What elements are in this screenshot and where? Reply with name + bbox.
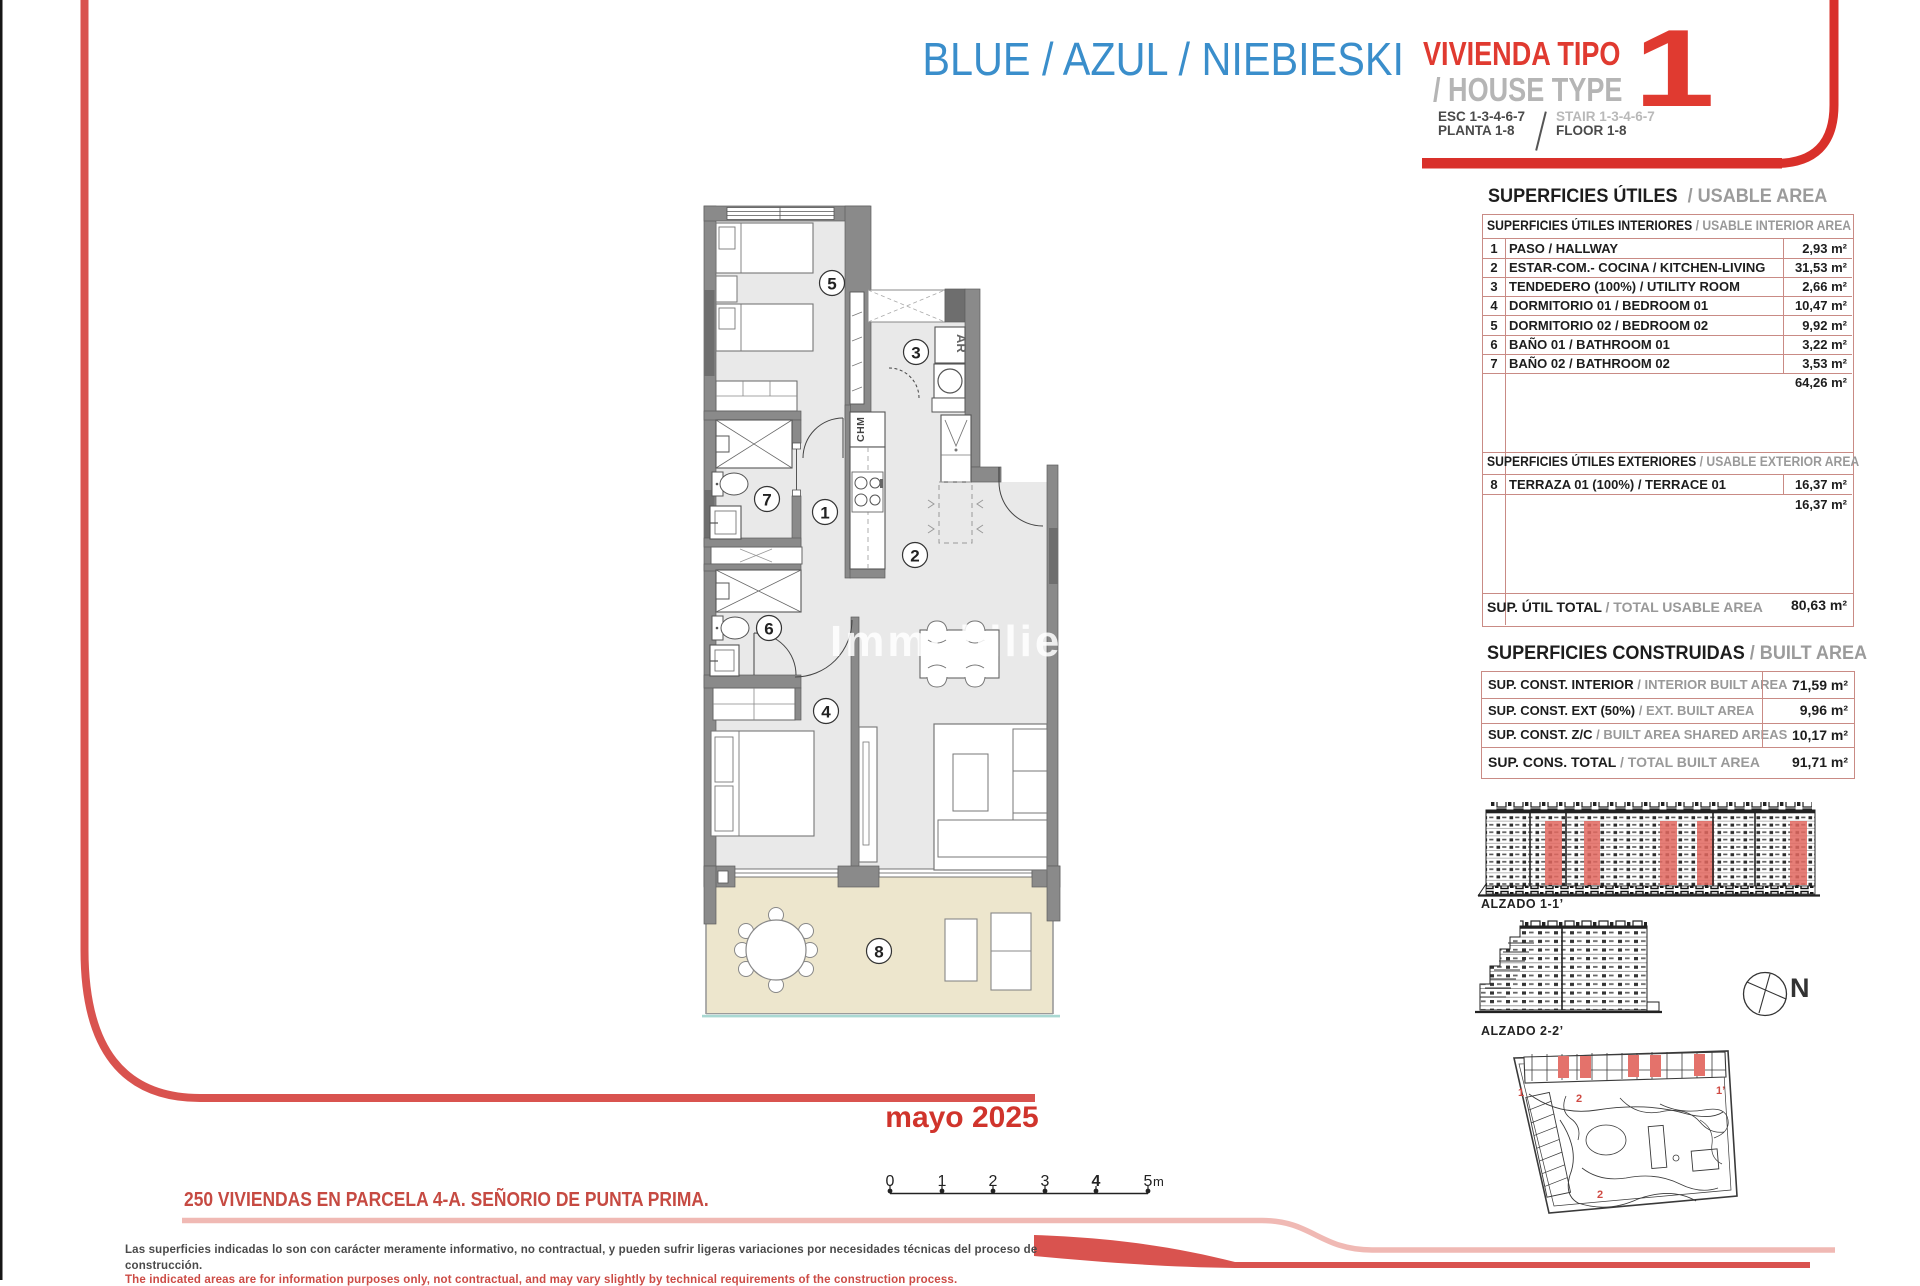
svg-text:ALZADO 2-2’: ALZADO 2-2’ xyxy=(1481,1024,1564,1038)
svg-text:N: N xyxy=(1790,973,1810,1003)
svg-text:4: 4 xyxy=(1092,1173,1101,1190)
svg-text:AR: AR xyxy=(954,334,969,353)
svg-text:6: 6 xyxy=(764,620,773,639)
svg-text:3: 3 xyxy=(1041,1173,1050,1190)
svg-text:5: 5 xyxy=(827,275,836,294)
svg-text:Immobilient.e: Immobilient.e xyxy=(830,617,1153,666)
svg-text:2: 2 xyxy=(910,547,919,566)
svg-text:4: 4 xyxy=(821,703,831,722)
svg-text:0: 0 xyxy=(886,1173,895,1190)
svg-text:ALZADO 1-1’: ALZADO 1-1’ xyxy=(1481,897,1564,911)
svg-text:5: 5 xyxy=(1144,1173,1153,1190)
svg-text:CHM: CHM xyxy=(855,417,867,442)
svg-text:2: 2 xyxy=(1597,1189,1603,1201)
svg-text:3: 3 xyxy=(911,344,920,363)
svg-text:7: 7 xyxy=(762,491,771,510)
svg-text:1’: 1’ xyxy=(1716,1085,1725,1097)
svg-text:m: m xyxy=(1153,1174,1164,1189)
svg-text:1: 1 xyxy=(1518,1087,1524,1099)
svg-text:1: 1 xyxy=(938,1173,947,1190)
svg-text:2: 2 xyxy=(989,1173,998,1190)
svg-text:2: 2 xyxy=(1576,1093,1582,1105)
svg-text:8: 8 xyxy=(874,943,883,962)
svg-text:1: 1 xyxy=(820,504,829,523)
